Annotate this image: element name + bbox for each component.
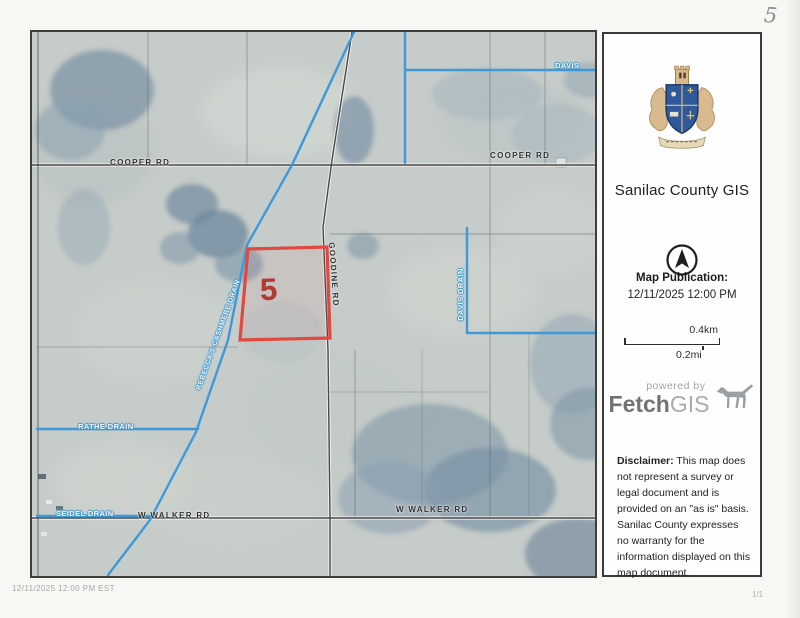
drain-label-seidel: SEIDEL DRAIN bbox=[56, 509, 114, 518]
map-legend-panel: Sanilac County GIS Map Publication: 12/1… bbox=[602, 32, 762, 577]
road-label-cooper-west: COOPER RD bbox=[110, 158, 170, 167]
brand-fetch: Fetch bbox=[609, 391, 670, 417]
map-viewport: COOPER RD COOPER RD GOODINE RD W WALKER … bbox=[30, 30, 597, 578]
dog-silhouette-icon bbox=[715, 382, 755, 414]
print-timestamp: 12/11/2025 12:00 PM EST bbox=[12, 584, 115, 593]
brand-gis: GIS bbox=[670, 391, 710, 417]
page-count: 1/1 bbox=[752, 590, 763, 599]
handwritten-page-number: 5 bbox=[763, 3, 795, 29]
publication-datetime: 12/11/2025 12:00 PM bbox=[604, 289, 760, 301]
parcel-number-label: 5 bbox=[259, 272, 277, 309]
fetchgis-brand: powered by FetchGIS bbox=[604, 380, 760, 416]
gis-title: Sanilac County GIS bbox=[604, 182, 760, 199]
drain-label-davis-north: DAVIS bbox=[555, 61, 579, 70]
parcel-outline bbox=[240, 247, 330, 340]
aerial-map-graphic bbox=[32, 32, 595, 576]
scale-bar-line bbox=[624, 338, 720, 345]
disclaimer-label: Disclaimer: bbox=[617, 455, 674, 467]
scale-mi-label: 0.2mi bbox=[676, 349, 720, 361]
publication-label: Map Publication: bbox=[604, 272, 760, 284]
scan-edge-shadow bbox=[784, 0, 800, 618]
road-label-cooper-east: COOPER RD bbox=[490, 151, 550, 160]
drain-label-davis-east: DAVIS DRAIN bbox=[456, 268, 465, 321]
fetchgis-wordmark: FetchGIS bbox=[609, 393, 710, 416]
drain-label-rathe: RATHE DRAIN bbox=[78, 422, 134, 431]
scale-km-label: 0.4km bbox=[624, 324, 720, 336]
disclaimer-text: Disclaimer: This map does not represent … bbox=[617, 454, 751, 582]
road-label-walker-center: W WALKER RD bbox=[396, 505, 469, 514]
road-label-walker-west: W WALKER RD bbox=[138, 511, 211, 520]
scale-bar: 0.4km 0.2mi bbox=[624, 324, 720, 361]
sanilac-county-crest-icon bbox=[640, 62, 724, 158]
disclaimer-body: This map does not represent a survey or … bbox=[617, 455, 750, 579]
